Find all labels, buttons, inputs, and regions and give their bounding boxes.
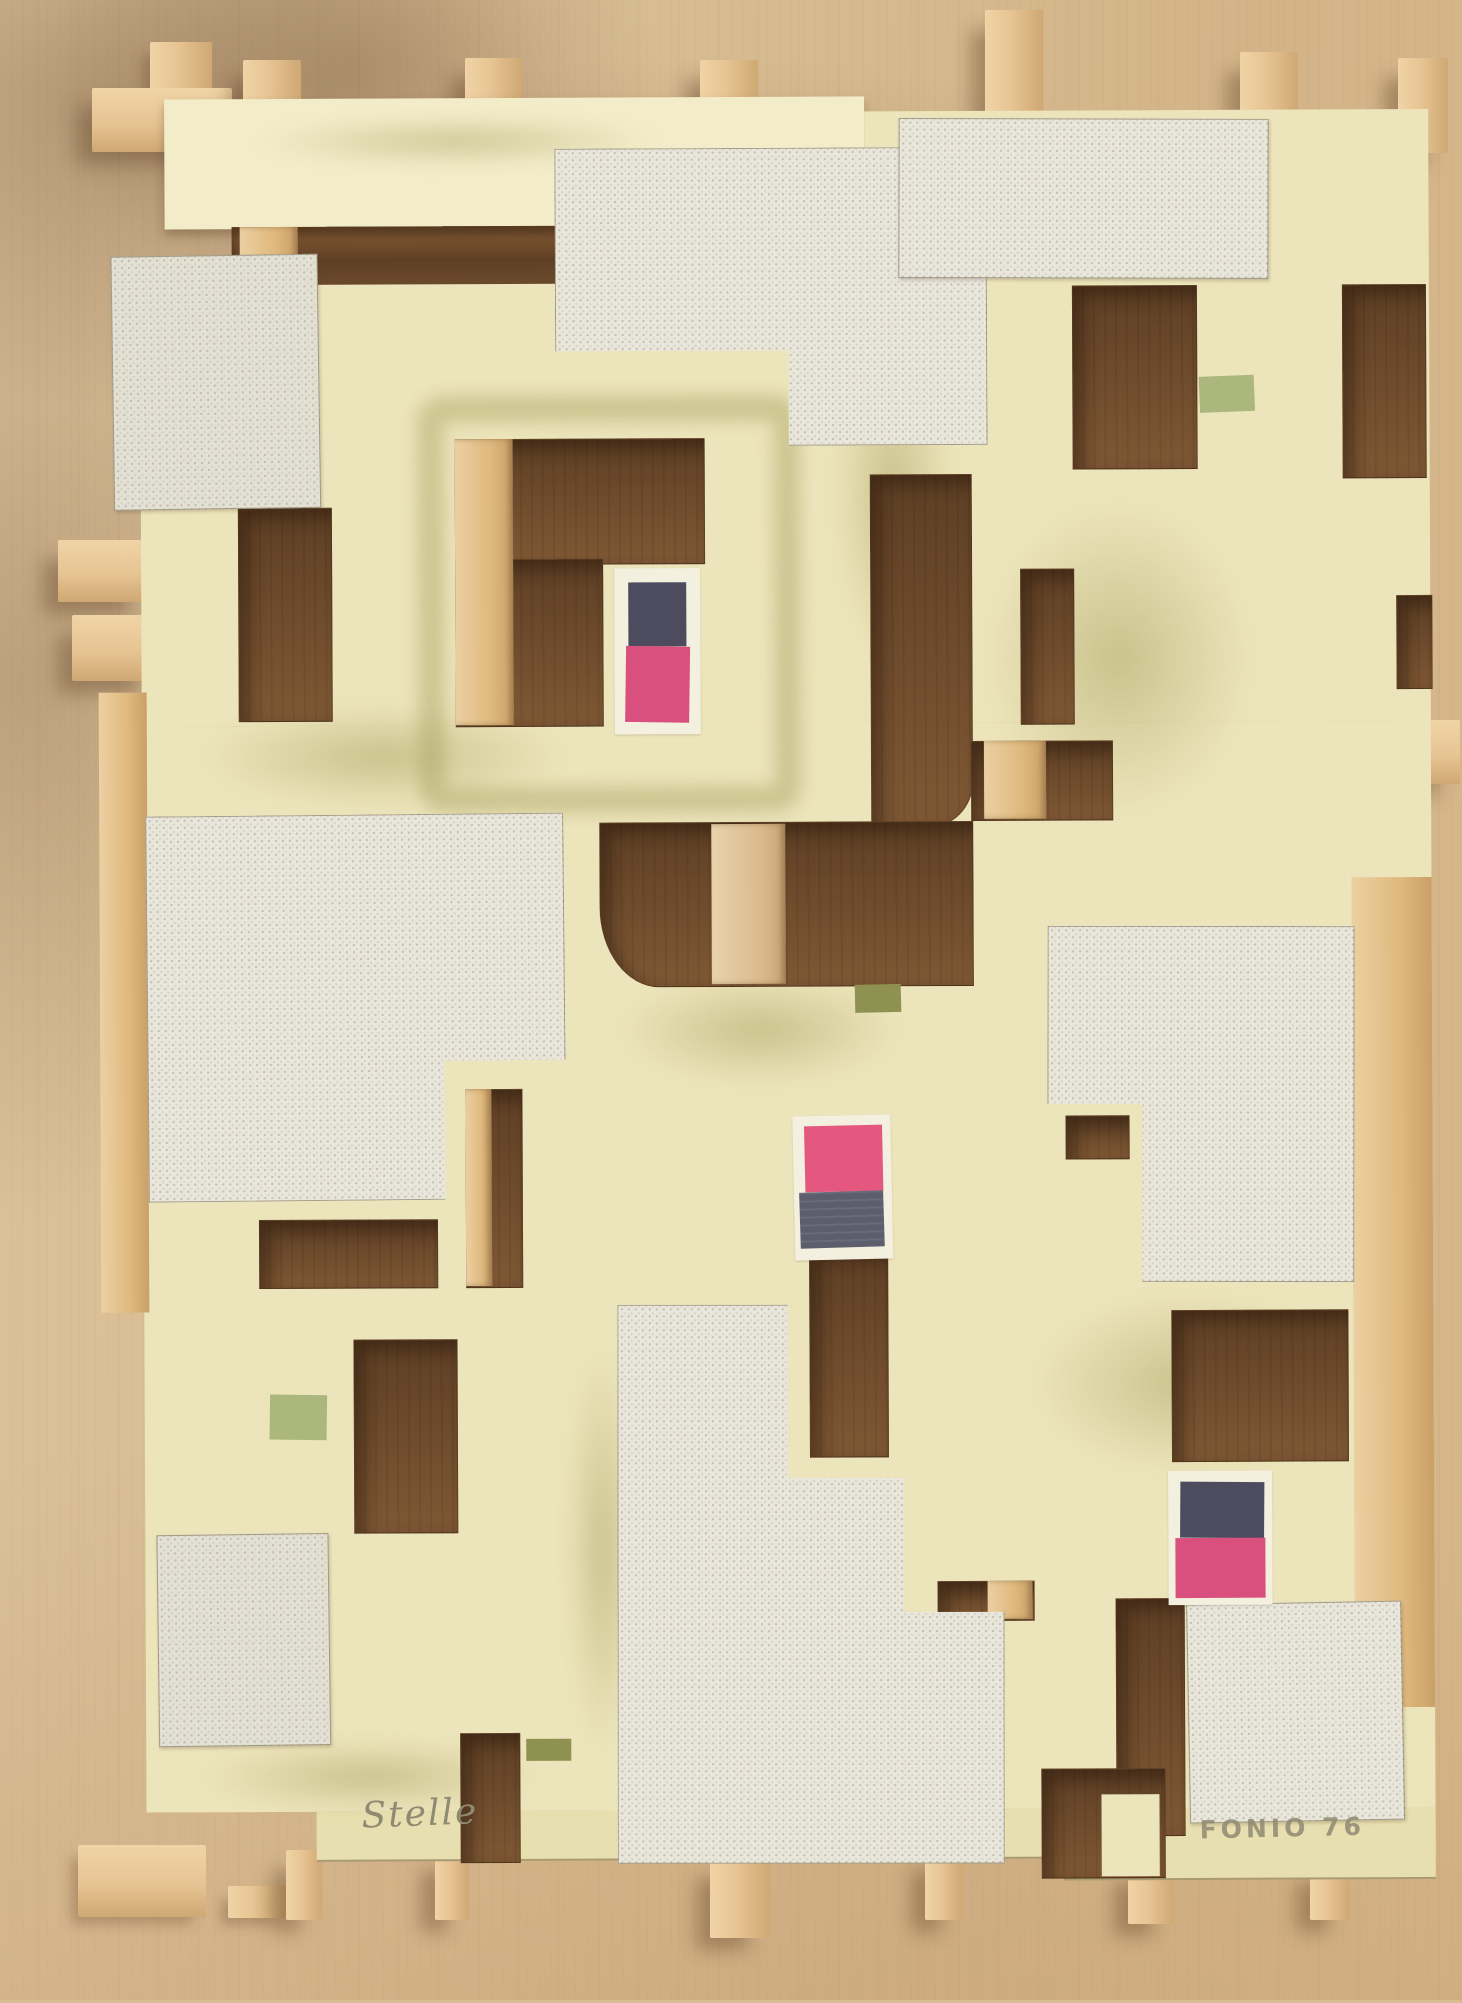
accent-green	[526, 1739, 571, 1761]
wood-stick-left-edge	[99, 693, 150, 1313]
stick-in-window	[984, 741, 1046, 819]
window-opening	[1342, 284, 1427, 478]
window-opening	[1396, 595, 1432, 689]
window-opening-center-foot	[599, 821, 974, 988]
window-opening-small	[1066, 1115, 1130, 1159]
stick-in-window	[465, 1089, 492, 1286]
accent-green	[270, 1395, 328, 1441]
accent-pink	[1175, 1538, 1265, 1598]
stick-in-window	[711, 824, 786, 984]
canvas-patch	[898, 118, 1268, 279]
accent-navy	[628, 582, 686, 646]
canvas-patch	[156, 1533, 331, 1747]
window-opening	[1072, 285, 1198, 470]
window-opening-center	[870, 474, 974, 828]
canvas-patch	[110, 254, 321, 511]
canvas-patch	[1186, 1601, 1405, 1824]
stick-in-window	[455, 439, 514, 725]
window-opening	[1171, 1309, 1349, 1462]
window-opening	[353, 1339, 458, 1533]
window-opening	[259, 1219, 438, 1289]
painted-panel: Stelle FONIO 76	[0, 0, 1462, 2003]
window-opening	[809, 1249, 889, 1457]
accent-pink	[804, 1125, 883, 1193]
panel-step-inside	[1101, 1794, 1159, 1876]
accent-navy	[799, 1190, 885, 1249]
accent-green	[855, 984, 902, 1013]
artist-signature-date: FONIO 76	[1199, 1812, 1365, 1845]
artist-signature-title: Stelle	[361, 1791, 479, 1837]
accent-pink	[625, 646, 690, 723]
window-opening	[238, 508, 333, 722]
accent-green	[1199, 375, 1255, 413]
accent-navy	[1180, 1482, 1264, 1539]
wood-stick-right-edge	[1351, 877, 1435, 1707]
window-opening	[1020, 568, 1075, 724]
